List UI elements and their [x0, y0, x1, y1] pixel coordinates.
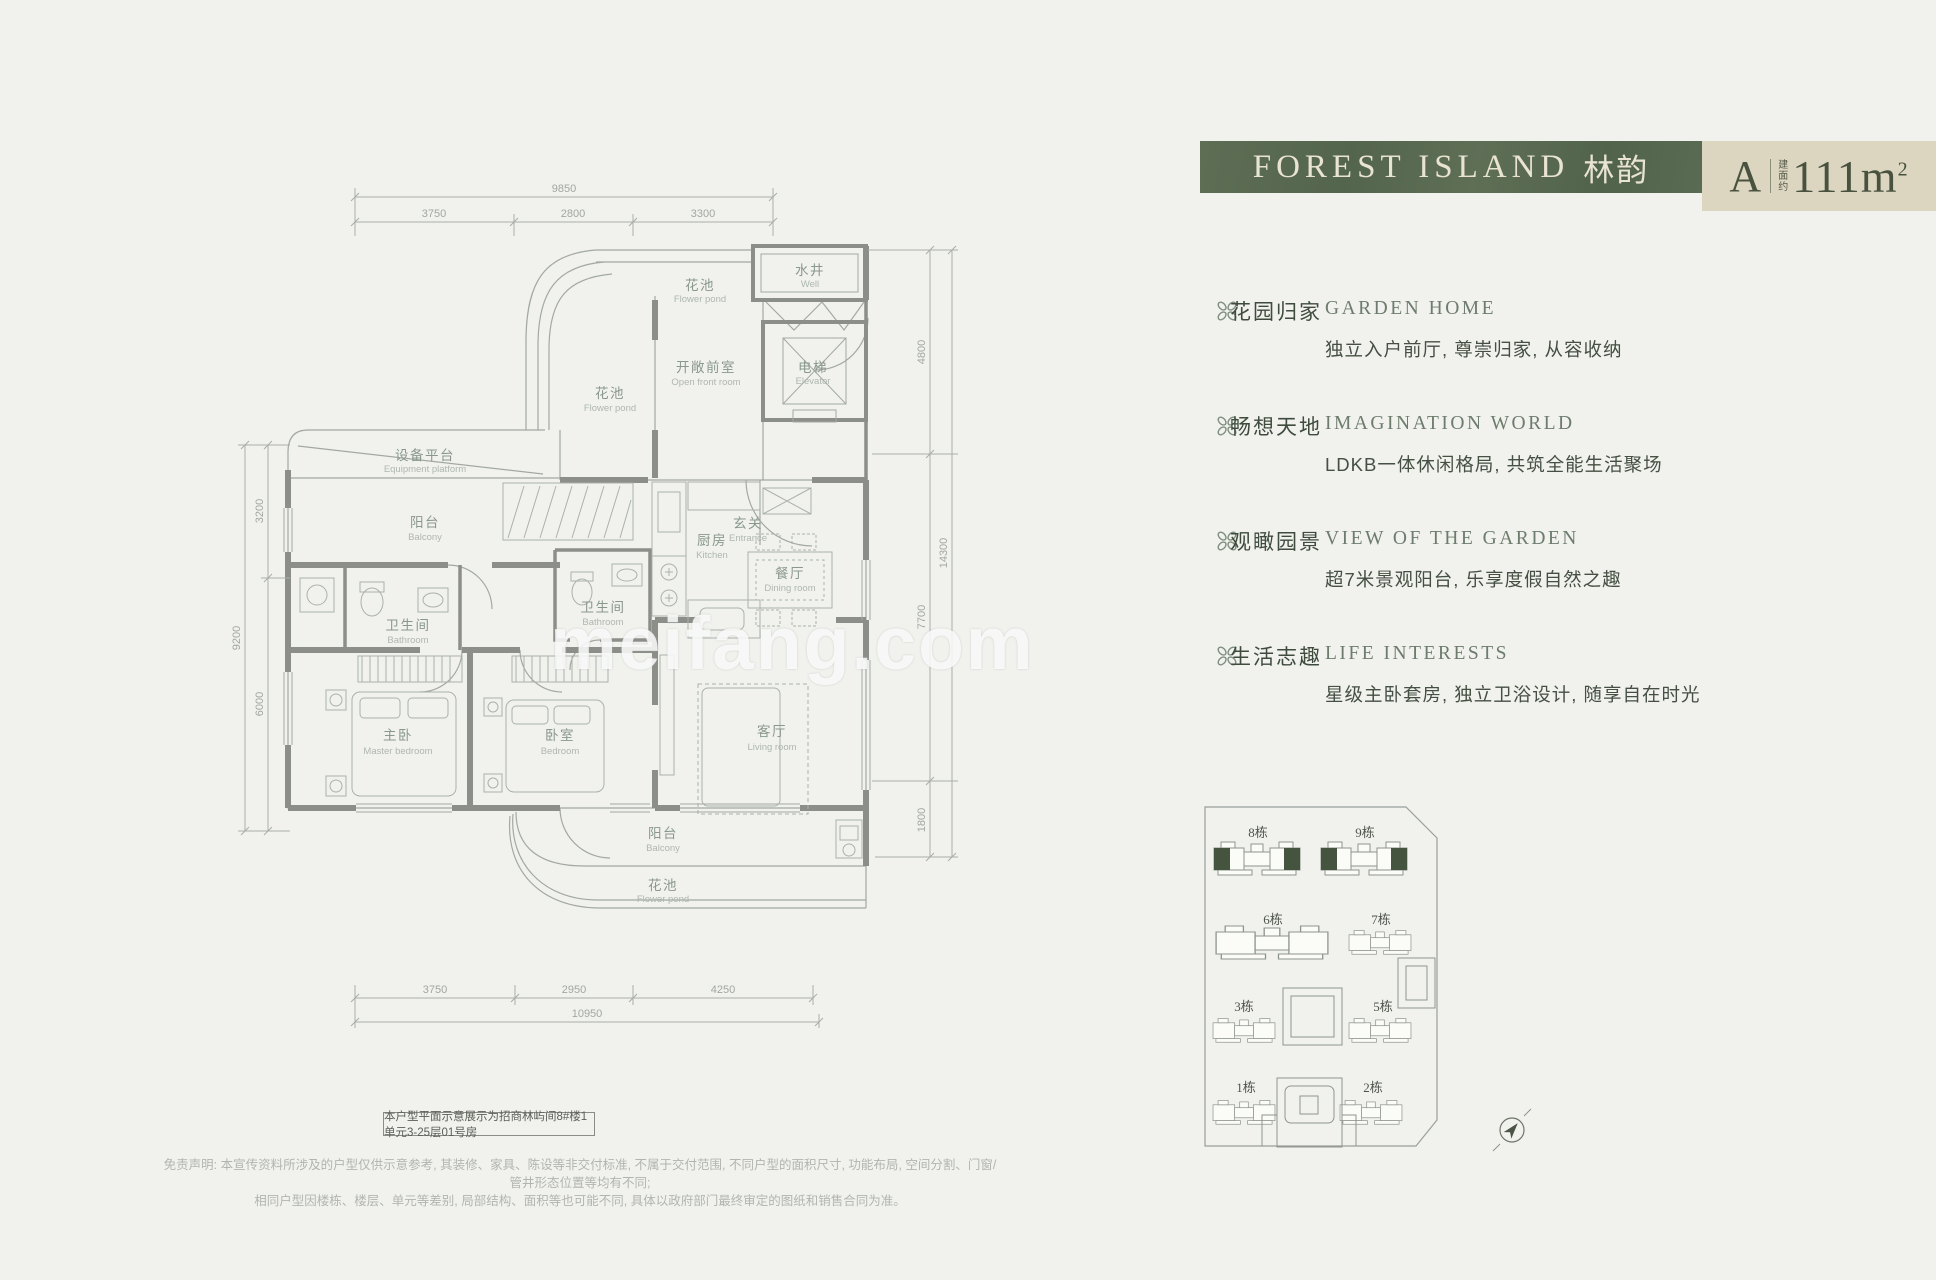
compass-icon — [1493, 1109, 1531, 1151]
room-openfront-en: Open front room — [671, 377, 740, 388]
room-flowerpond-bottom-cn: 花池 — [648, 878, 678, 893]
feature-row-garden-home: 花园归家 GARDEN HOME 独立入户前厅, 尊崇归家, 从容收纳 — [1214, 292, 1834, 388]
room-well-en: Well — [801, 279, 819, 290]
feature-title-en: IMAGINATION WORLD — [1325, 413, 1575, 435]
area-exponent: 2 — [1898, 158, 1909, 180]
building-6 — [1216, 926, 1328, 959]
dim-left-total: 9200 — [231, 626, 243, 650]
dim-top-seg3: 3300 — [691, 208, 715, 220]
dim-bot-seg2: 2950 — [562, 984, 586, 996]
dim-top-seg1: 3750 — [422, 208, 446, 220]
feature-title-cn: 畅想天地 — [1230, 411, 1322, 441]
watermark: meifang.com — [550, 600, 1020, 686]
feature-desc: 独立入户前厅, 尊崇归家, 从容收纳 — [1325, 336, 1623, 362]
room-balcony-bottom-en: Balcony — [646, 843, 680, 854]
room-flowerpond-top-cn: 花池 — [685, 278, 715, 293]
title-chinese: 林韵 — [1583, 145, 1649, 190]
dim-top-seg2: 2800 — [561, 208, 585, 220]
feature-title-en: LIFE INTERESTS — [1325, 643, 1509, 665]
room-flowerpond-top-en: Flower pond — [674, 294, 726, 305]
room-openfront-cn: 开敞前室 — [676, 359, 736, 375]
room-equipment-cn: 设备平台 — [395, 447, 455, 463]
unit-letter: A — [1729, 151, 1761, 202]
area-prefix: 建 面 约 — [1778, 160, 1788, 193]
feature-row-imagination-world: 畅想天地 IMAGINATION WORLD LDKB一体休闲格局, 共筑全能生… — [1214, 407, 1834, 503]
feature-title-cn: 花园归家 — [1230, 296, 1322, 326]
room-kitchen-cn: 厨房 — [697, 533, 727, 548]
room-elevator-cn: 电梯 — [798, 360, 828, 375]
dim-right-seg1: 4800 — [916, 340, 928, 364]
room-balcony-left-en: Balcony — [408, 532, 442, 543]
building-1-label: 1栋 — [1236, 1080, 1256, 1095]
room-living-en: Living room — [747, 742, 796, 753]
room-flowerpond-mid-cn: 花池 — [595, 386, 625, 401]
building-5 — [1349, 1018, 1411, 1042]
room-elevator-en: Elevator — [796, 376, 831, 387]
room-bath-a-en: Bathroom — [387, 635, 428, 646]
feature-title-cn: 观瞰园景 — [1230, 526, 1322, 556]
dim-bot-seg3: 4250 — [711, 984, 735, 996]
building-3-label: 3栋 — [1234, 999, 1254, 1014]
room-flowerpond-mid-en: Flower pond — [584, 403, 636, 414]
room-entrance-en: Entrance — [729, 533, 767, 544]
dim-right-total: 14300 — [938, 538, 950, 569]
building-7-label: 7栋 — [1371, 912, 1391, 927]
dim-right-seg3: 1800 — [916, 808, 928, 832]
feature-title-en: VIEW OF THE GARDEN — [1325, 528, 1579, 550]
building-8-label: 8栋 — [1248, 825, 1268, 840]
feature-desc: LDKB一体休闲格局, 共筑全能生活聚场 — [1325, 451, 1663, 477]
room-bath-a-cn: 卫生间 — [386, 618, 431, 633]
room-bedroom-en: Bedroom — [541, 746, 580, 757]
dim-bot-total: 10950 — [572, 1008, 603, 1020]
room-labels: 花池 Flower pond 水井 Well 开敞前室 Open front r… — [363, 263, 830, 905]
room-kitchen-en: Kitchen — [696, 550, 728, 561]
room-entrance-cn: 玄关 — [733, 515, 763, 531]
building-6-label: 6栋 — [1263, 912, 1283, 927]
room-flowerpond-bottom-en: Flower pond — [637, 894, 689, 905]
area-value: 111m2 — [1792, 150, 1908, 203]
feature-title-en: GARDEN HOME — [1325, 298, 1496, 320]
room-master-cn: 主卧 — [383, 728, 413, 743]
room-master-en: Master bedroom — [363, 746, 432, 757]
room-bedroom-cn: 卧室 — [545, 727, 575, 743]
room-balcony-left-cn: 阳台 — [410, 515, 440, 530]
room-dining-cn: 餐厅 — [775, 566, 805, 581]
room-living-cn: 客厅 — [757, 723, 787, 739]
building-2 — [1340, 1100, 1402, 1124]
building-7 — [1349, 930, 1411, 954]
disclaimer-line1: 免责声明: 本宣传资料所涉及的户型仅供示意参考, 其装修、家具、陈设等非交付标准… — [160, 1156, 1000, 1192]
dim-left-seg2: 6000 — [254, 692, 266, 716]
feature-row-view-of-garden: 观瞰园景 VIEW OF THE GARDEN 超7米景观阳台, 乐享度假自然之… — [1214, 522, 1834, 618]
dim-left-seg1: 3200 — [254, 499, 266, 523]
building-9-label: 9栋 — [1355, 825, 1375, 840]
divider-line — [1770, 159, 1771, 193]
feature-row-life-interests: 生活志趣 LIFE INTERESTS 星级主卧套房, 独立卫浴设计, 随享自在… — [1214, 637, 1834, 733]
siteplan: 8栋 9栋 6栋 7栋 3栋 5栋 1栋 2栋 — [1205, 807, 1531, 1151]
dim-top-total: 9850 — [552, 183, 576, 195]
building-5-label: 5栋 — [1373, 999, 1393, 1014]
unit-area-badge: A 建 面 约 111m2 — [1702, 141, 1936, 211]
building-2-label: 2栋 — [1363, 1080, 1383, 1095]
room-well-cn: 水井 — [795, 263, 825, 278]
disclaimer: 免责声明: 本宣传资料所涉及的户型仅供示意参考, 其装修、家具、陈设等非交付标准… — [160, 1156, 1000, 1210]
room-dining-en: Dining room — [764, 583, 815, 594]
room-balcony-bottom-cn: 阳台 — [648, 826, 678, 841]
feature-title-cn: 生活志趣 — [1230, 641, 1322, 671]
feature-desc: 超7米景观阳台, 乐享度假自然之趣 — [1325, 566, 1622, 592]
disclaimer-line2: 相同户型因楼栋、楼层、单元等差别, 局部结构、面积等也可能不同, 具体以政府部门… — [160, 1192, 1000, 1210]
feature-desc: 星级主卧套房, 独立卫浴设计, 随享自在时光 — [1325, 681, 1701, 707]
floorplan-walls — [288, 246, 866, 866]
title-english: FOREST ISLAND — [1253, 149, 1570, 186]
room-equipment-en: Equipment platform — [384, 464, 466, 475]
dim-bot-seg1: 3750 — [423, 984, 447, 996]
building-1 — [1213, 1100, 1275, 1124]
floorplan-note: 本户型平面示意展示为招商林屿间8#楼1单元3-25层01号房 — [383, 1112, 595, 1136]
building-3 — [1213, 1018, 1275, 1042]
title-banner: FOREST ISLAND 林韵 — [1200, 141, 1702, 193]
